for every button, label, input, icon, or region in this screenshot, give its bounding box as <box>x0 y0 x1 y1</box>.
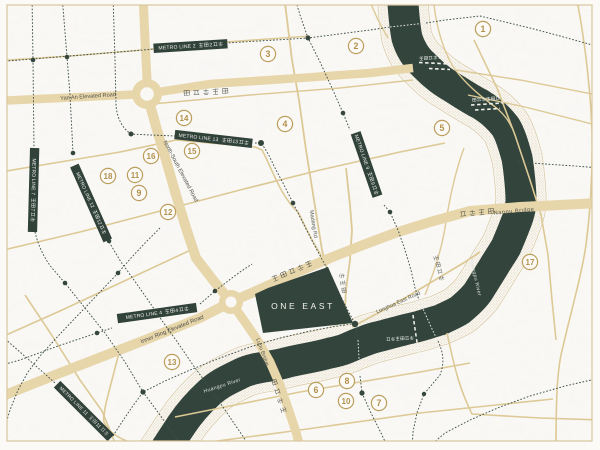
svg-text:13: 13 <box>232 139 238 146</box>
svg-text:3: 3 <box>266 49 271 59</box>
svg-text:7: 7 <box>29 208 35 211</box>
svg-text:10: 10 <box>342 397 351 406</box>
svg-text:15: 15 <box>188 147 197 156</box>
svg-text:1: 1 <box>481 24 486 34</box>
svg-text:9: 9 <box>137 188 142 198</box>
svg-text:METRO LINE 7: METRO LINE 7 <box>30 158 37 195</box>
svg-text:2: 2 <box>354 41 359 51</box>
svg-text:14: 14 <box>180 114 189 123</box>
svg-text:11: 11 <box>131 171 140 180</box>
svg-text:5: 5 <box>440 123 445 133</box>
svg-text:16: 16 <box>147 152 156 161</box>
svg-text:13: 13 <box>168 358 177 367</box>
svg-text:ONE EAST: ONE EAST <box>271 301 335 311</box>
svg-text:4: 4 <box>283 119 288 129</box>
svg-text:7: 7 <box>377 398 382 408</box>
svg-text:17: 17 <box>526 258 535 267</box>
svg-text:6: 6 <box>314 385 319 395</box>
svg-text:12: 12 <box>164 208 173 217</box>
svg-text:18: 18 <box>104 172 113 181</box>
svg-text:2: 2 <box>209 42 212 48</box>
svg-text:8: 8 <box>345 376 350 386</box>
